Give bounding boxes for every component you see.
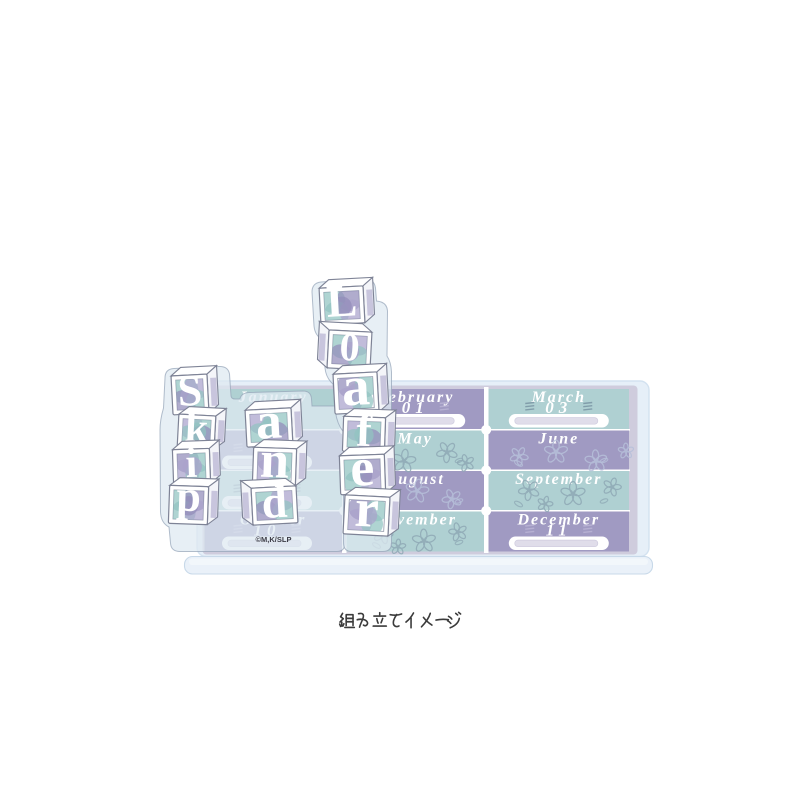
- svg-text:d: d: [260, 476, 289, 528]
- svg-text:©M,K/SLP: ©M,K/SLP: [256, 535, 292, 544]
- svg-text:p: p: [176, 471, 202, 521]
- svg-text:L: L: [325, 274, 358, 327]
- svg-text:r: r: [353, 478, 380, 539]
- svg-text:June: June: [537, 431, 579, 448]
- svg-text:September: September: [515, 471, 602, 488]
- svg-text:May: May: [397, 431, 433, 448]
